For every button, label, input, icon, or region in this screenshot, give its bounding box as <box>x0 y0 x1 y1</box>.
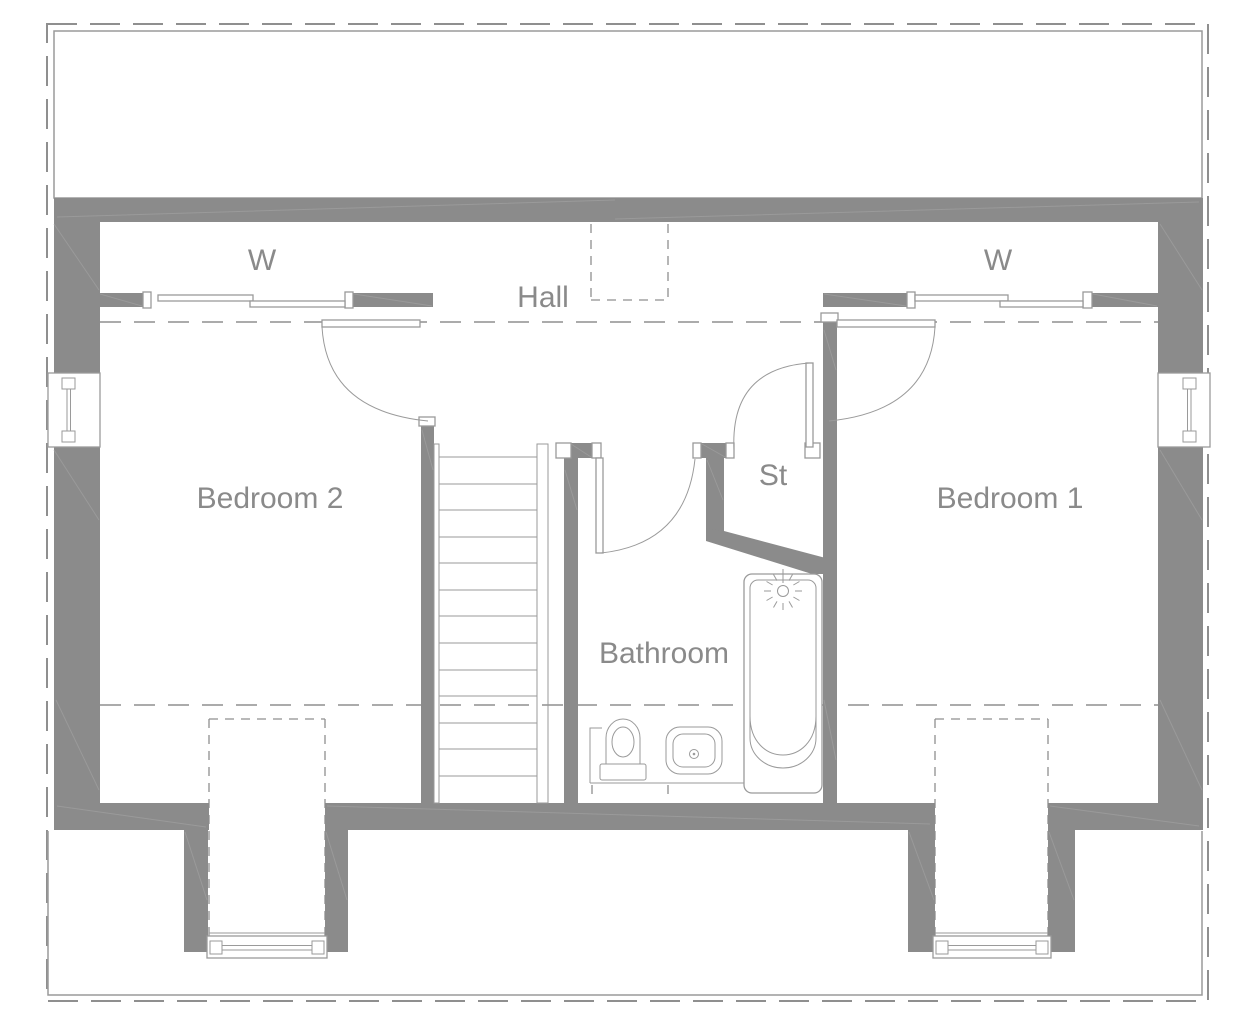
window-right <box>1158 373 1210 447</box>
slider-panel <box>158 295 253 301</box>
doors <box>322 320 935 553</box>
jamb <box>1083 292 1092 308</box>
label-storage: St <box>759 459 788 492</box>
label-bathroom: Bathroom <box>599 637 729 670</box>
sink <box>666 727 722 774</box>
door-jambs <box>143 292 1092 458</box>
wall-storage-diagonal <box>706 528 837 574</box>
wardrobe-sliding-doors <box>158 295 1083 307</box>
room-labels: Bedroom 2 Bedroom 1 Hall Bathroom St W W <box>197 244 1084 670</box>
jamb <box>726 443 734 458</box>
stair-stringer-left <box>434 444 439 803</box>
floor-plan: Bedroom 2 Bedroom 1 Hall Bathroom St W W <box>0 0 1248 1026</box>
roof-top-area <box>54 31 1202 198</box>
wall-left-lower <box>54 447 100 803</box>
dormer-window-right <box>933 933 1051 958</box>
dormer-ceiling-line-right <box>935 719 1048 936</box>
label-hall: Hall <box>517 281 569 314</box>
wall-bedroom2-stairs <box>421 425 434 803</box>
jamb <box>345 292 353 308</box>
label-wardrobe-right: W <box>984 244 1013 277</box>
floor-plan-page: Bedroom 2 Bedroom 1 Hall Bathroom St W W <box>0 0 1248 1026</box>
jamb <box>143 292 151 308</box>
label-wardrobe-left: W <box>248 244 277 277</box>
walls <box>54 198 1203 952</box>
slider-panel <box>250 301 345 307</box>
jamb <box>907 292 915 308</box>
door-bathroom <box>596 458 695 553</box>
wall-right-lower <box>1158 447 1203 803</box>
wall-stairs-bathroom <box>564 458 578 803</box>
toilet <box>600 719 646 780</box>
window-left <box>48 373 100 447</box>
bathroom-fixtures <box>590 569 822 793</box>
stair-treads <box>439 457 537 776</box>
wall-left-upper <box>54 222 100 373</box>
door-bedroom2 <box>322 320 428 421</box>
roof-eaves-bottom-outline <box>48 831 1202 995</box>
loft-hatch-dashed-square <box>591 224 668 300</box>
wall-right-upper <box>1158 222 1203 373</box>
wall-bottom-band-center <box>325 803 935 830</box>
slider-panel <box>915 295 1008 301</box>
jamb <box>419 417 435 426</box>
dormer-ceiling-line-left <box>209 719 325 936</box>
label-bedroom-1: Bedroom 1 <box>937 482 1084 515</box>
jamb <box>693 443 701 458</box>
door-bedroom1 <box>829 320 935 421</box>
jamb <box>592 443 601 458</box>
door-storage <box>734 363 813 450</box>
vanity-dashed-lines <box>592 785 668 801</box>
slider-panel <box>1000 301 1083 307</box>
jamb <box>556 443 571 458</box>
label-bedroom-2: Bedroom 2 <box>197 482 344 515</box>
stairs <box>434 444 548 803</box>
dormer-window-left <box>207 933 327 958</box>
stair-stringer-right <box>537 444 548 803</box>
jamb <box>821 313 838 322</box>
